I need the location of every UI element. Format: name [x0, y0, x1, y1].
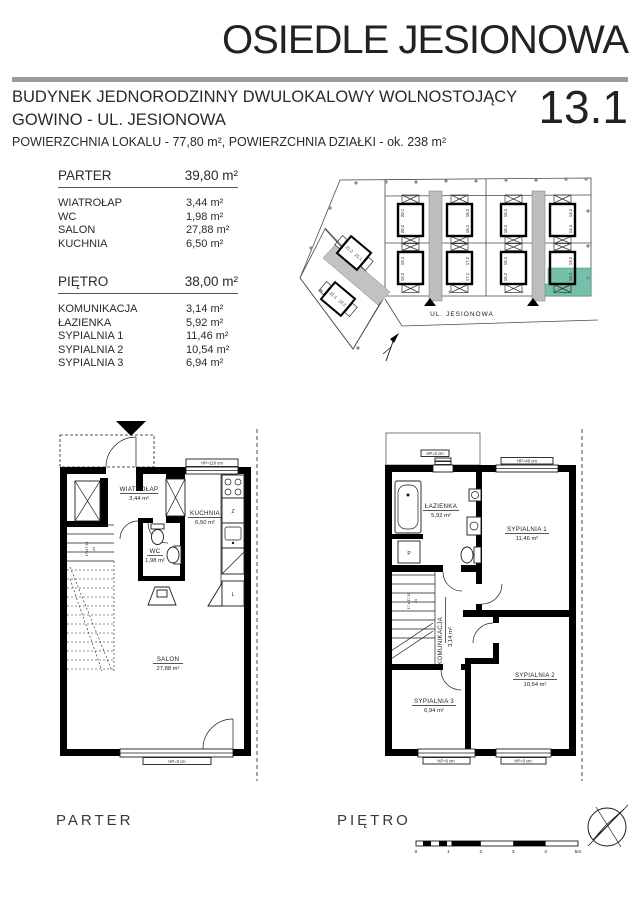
shaft-hatch-right: [166, 479, 185, 516]
window-height-label: HP=0 cm: [168, 759, 186, 764]
compass-north-icon: [580, 798, 634, 856]
room-area: 11,46 m²: [186, 330, 238, 344]
scale-tick: 0: [415, 849, 418, 855]
pietro-plan-caption: PIĘTRO: [337, 812, 411, 829]
pietro-total-area: 38,00 m²: [185, 274, 238, 289]
table-row: KOMUNIKACJA3,14 m²: [58, 303, 238, 317]
parter-total-area: 39,80 m²: [185, 168, 238, 183]
room-label: SALON: [58, 224, 186, 238]
parter-area-table: PARTER 39,80 m² WIATROŁAP3,44 m² WC1,98 …: [58, 168, 238, 251]
house-15: 15.1 15.2: [501, 244, 526, 293]
room-area: 3,44 m²: [186, 197, 238, 211]
bottom-window-right: HP=0 cm: [496, 749, 551, 764]
table-row: SYPIALNIA 36,94 m²: [58, 357, 238, 371]
site-plan: 20.1 20.2 19.1 19.2 18.2 18.1 17.2 17.1 …: [290, 166, 635, 385]
unit-label: 20.2: [400, 224, 405, 233]
sypialnia2-area: 10,54 m²: [524, 682, 547, 688]
scale-tick: 3: [512, 849, 515, 855]
page-title: OSIEDLE JESIONOWA: [222, 18, 628, 63]
bathroom-fixtures: P: [395, 481, 481, 563]
street-label: UL. JESIONOWA: [430, 311, 494, 318]
stairs-dimension: 17x17,35: [85, 542, 89, 557]
sypialnia1-area: 11,46 m²: [516, 536, 539, 542]
pietro-table-title: PIĘTRO: [58, 274, 108, 289]
stairs-tread: 24: [92, 547, 96, 551]
wiatrolap-label: WIATROŁAP: [120, 486, 159, 493]
scale-tick: 4: [544, 849, 547, 855]
room-label: WIATROŁAP: [58, 197, 186, 211]
stairs-tread: 24: [414, 599, 418, 603]
bottom-window-salon: HP=0 cm: [120, 719, 233, 765]
house-19: 19.1 19.2: [398, 244, 423, 293]
unit-label: 18.2: [465, 208, 470, 217]
unit-label-highlighted: 13.1: [568, 272, 573, 281]
table-row: SYPIALNIA 210,54 m²: [58, 344, 238, 358]
window-height-label: HP=0 cm: [426, 451, 444, 456]
pietro-table-header: PIĘTRO 38,00 m²: [58, 274, 238, 294]
room-label: SYPIALNIA 3: [58, 357, 186, 371]
room-area: 3,14 m²: [186, 303, 238, 317]
unit-label: 15.2: [503, 272, 508, 281]
street: UL. JESIONOWA: [385, 298, 598, 326]
fireplace: [148, 587, 176, 605]
top-window-right: HP=40 cm: [496, 458, 558, 473]
scale-tick: 2: [479, 849, 482, 855]
table-row: SYPIALNIA 111,46 m²: [58, 330, 238, 344]
stairs-dimension: 17 x 17,35: [407, 593, 411, 610]
table-row: KUCHNIA6,50 m²: [58, 238, 238, 252]
table-row: ŁAZIENKA5,92 m²: [58, 317, 238, 331]
salon-label: SALON: [157, 656, 179, 663]
unit-label: 15.1: [503, 256, 508, 265]
lazienka-area: 5,92 m²: [431, 513, 451, 519]
scale-bar: 0 1 2 3 4 5m: [413, 833, 588, 857]
pietro-floor-plan: HP=0 cm HP=40 cm HP=0 cm HP=0 cm P 17 x: [383, 421, 588, 786]
house-14: 14.2 14.1: [550, 195, 575, 244]
salon-area: 27,88 m²: [157, 666, 180, 672]
tilted-plot: 21.2 21.1 22.1 22.2: [300, 229, 399, 361]
house-16: 16.1 16.2: [501, 195, 526, 244]
window-height-label: HP=110 cm: [201, 461, 223, 466]
sypialnia3-label: SYPIALNIA 3: [414, 698, 454, 705]
lazienka-label: ŁAZIENKA: [425, 503, 458, 510]
header-divider-bar: [12, 77, 628, 82]
bottom-window-left: HP=0 cm: [418, 749, 475, 764]
unit-number: 13.1: [538, 80, 628, 134]
window-height-label: HP=40 cm: [517, 459, 537, 464]
dishwasher-label: Z: [231, 509, 234, 515]
shaft-hatch-left: [75, 481, 100, 521]
room-label: WC: [58, 211, 186, 225]
north-arrow-sketch: [383, 333, 399, 361]
unit-label: 20.1: [400, 208, 405, 217]
unit-label: 14.1: [568, 224, 573, 233]
stairs: 17x17,35 24: [67, 525, 114, 673]
room-label: ŁAZIENKA: [58, 317, 186, 331]
parter-table-title: PARTER: [58, 168, 112, 183]
room-label: KOMUNIKACJA: [58, 303, 186, 317]
unit-label: 17.1: [465, 272, 470, 281]
room-label: SYPIALNIA 1: [58, 330, 186, 344]
building-type-line: BUDYNEK JEDNORODZINNY DWULOKALOWY WOLNOS…: [12, 88, 517, 107]
room-label: SYPIALNIA 2: [58, 344, 186, 358]
table-row: WC1,98 m²: [58, 211, 238, 225]
kitchen-fixtures: Z L: [208, 474, 244, 606]
unit-label: 17.2: [465, 256, 470, 265]
pietro-area-table: PIĘTRO 38,00 m² KOMUNIKACJA3,14 m² ŁAZIE…: [58, 274, 238, 371]
room-label: KUCHNIA: [58, 238, 186, 252]
unit-label: 18.1: [465, 224, 470, 233]
sypialnia3-area: 6,94 m²: [424, 708, 444, 714]
stairs: 17 x 17,35 24: [391, 572, 435, 664]
unit-label: 16.1: [503, 208, 508, 217]
top-window-kitchen: HP=110 cm: [186, 459, 238, 474]
window-height-label: HP=0 cm: [514, 759, 532, 764]
window-height-label: HP=0 cm: [437, 759, 455, 764]
unit-label: 13.2: [568, 256, 573, 265]
house-18: 18.2 18.1: [447, 195, 472, 244]
room-area: 6,94 m²: [186, 357, 238, 371]
unit-label: 14.2: [568, 208, 573, 217]
sypialnia2-label: SYPIALNIA 2: [515, 672, 555, 679]
kuchnia-label: KUCHNIA: [190, 510, 221, 517]
location-line: GOWINO - UL. JESIONOWA: [12, 111, 226, 130]
wc-area: 1,98 m²: [145, 558, 165, 564]
wiatrolap-area: 3,44 m²: [129, 496, 149, 502]
entry-canopy-dashed: [60, 435, 154, 467]
room-area: 6,50 m²: [186, 238, 238, 252]
roof-below-outline: [386, 433, 480, 465]
entrance-door: [106, 437, 136, 467]
table-row: SALON27,88 m²: [58, 224, 238, 238]
table-row: WIATROŁAP3,44 m²: [58, 197, 238, 211]
house-20: 20.1 20.2: [398, 195, 423, 244]
area-info-line: POWIERZCHNIA LOKALU - 77,80 m², POWIERZC…: [12, 135, 446, 149]
room-labels: ŁAZIENKA 5,92 m² SYPIALNIA 1 11,46 m² KO…: [412, 503, 557, 714]
unit-label: 19.1: [400, 256, 405, 265]
parter-table-header: PARTER 39,80 m²: [58, 168, 238, 188]
unit-label: 19.2: [400, 272, 405, 281]
komunikacja-area: 3,14 m²: [448, 627, 454, 647]
scale-tick: 1: [447, 849, 450, 855]
kuchnia-area: 6,50 m²: [195, 520, 215, 526]
room-area: 5,92 m²: [186, 317, 238, 331]
room-area: 10,54 m²: [186, 344, 238, 358]
komunikacja-label: KOMUNIKACJA: [437, 616, 444, 665]
room-area: 1,98 m²: [186, 211, 238, 225]
fridge-label: L: [232, 592, 235, 598]
room-area: 27,88 m²: [186, 224, 238, 238]
house-17: 17.2 17.1: [447, 244, 472, 293]
parter-floor-plan: HP=110 cm HP=0 cm 17x17,35 24: [58, 421, 263, 786]
wc-label: WC: [150, 548, 161, 555]
sypialnia1-label: SYPIALNIA 1: [507, 526, 547, 533]
unit-label: 16.2: [503, 224, 508, 233]
parter-plan-caption: PARTER: [56, 812, 133, 829]
entrance-arrow: [116, 421, 146, 436]
